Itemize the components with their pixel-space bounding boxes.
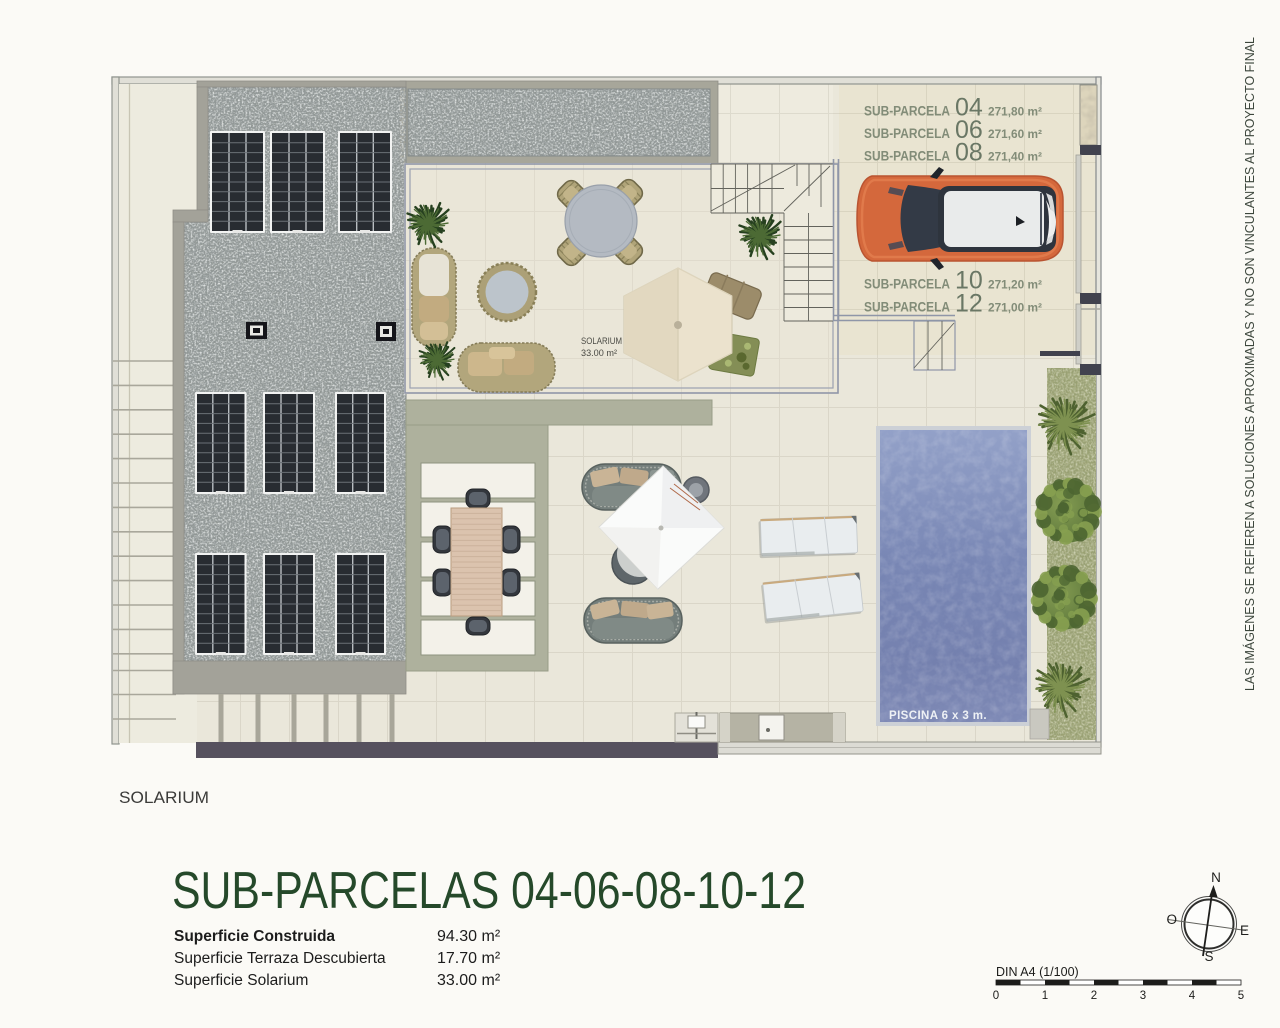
svg-text:33.00 m²: 33.00 m² bbox=[581, 348, 617, 359]
svg-text:271,80 m²: 271,80 m² bbox=[988, 105, 1042, 119]
svg-text:E: E bbox=[1240, 923, 1249, 938]
svg-text:SOLARIUM: SOLARIUM bbox=[581, 336, 622, 347]
svg-text:271,40 m²: 271,40 m² bbox=[988, 150, 1042, 164]
svg-text:S: S bbox=[1204, 949, 1213, 964]
svg-text:SUB-PARCELA: SUB-PARCELA bbox=[864, 277, 950, 292]
svg-text:12: 12 bbox=[955, 290, 983, 318]
svg-text:Superficie Construida: Superficie Construida bbox=[174, 928, 335, 945]
svg-text:94.30 m²: 94.30 m² bbox=[437, 928, 501, 945]
svg-text:N: N bbox=[1211, 870, 1221, 885]
svg-text:SUB-PARCELA: SUB-PARCELA bbox=[864, 126, 950, 141]
svg-text:SUB-PARCELAS 04-06-08-10-12: SUB-PARCELAS 04-06-08-10-12 bbox=[172, 862, 806, 920]
svg-text:08: 08 bbox=[955, 139, 983, 167]
svg-text:SUB-PARCELA: SUB-PARCELA bbox=[864, 149, 950, 164]
svg-text:SUB-PARCELA: SUB-PARCELA bbox=[864, 104, 950, 119]
svg-text:O: O bbox=[1166, 912, 1177, 927]
svg-text:1: 1 bbox=[1042, 990, 1048, 1002]
svg-text:Superficie Solarium: Superficie Solarium bbox=[174, 972, 308, 989]
svg-text:LAS IMÁGENES SE REFIEREN A SOL: LAS IMÁGENES SE REFIEREN A SOLUCIONES AP… bbox=[1242, 37, 1257, 691]
svg-text:271,00 m²: 271,00 m² bbox=[988, 301, 1042, 315]
svg-text:PISCINA 6 x 3 m.: PISCINA 6 x 3 m. bbox=[889, 710, 987, 722]
svg-text:17.70 m²: 17.70 m² bbox=[437, 950, 501, 967]
svg-text:SOLARIUM: SOLARIUM bbox=[119, 788, 209, 807]
svg-text:5: 5 bbox=[1238, 990, 1244, 1002]
svg-text:DIN A4 (1/100): DIN A4 (1/100) bbox=[996, 965, 1079, 979]
svg-text:271,20 m²: 271,20 m² bbox=[988, 278, 1042, 292]
svg-text:SUB-PARCELA: SUB-PARCELA bbox=[864, 300, 950, 315]
svg-text:0: 0 bbox=[993, 990, 999, 1002]
svg-text:2: 2 bbox=[1091, 990, 1097, 1002]
svg-text:33.00 m²: 33.00 m² bbox=[437, 972, 501, 989]
svg-text:271,60 m²: 271,60 m² bbox=[988, 127, 1042, 141]
svg-text:3: 3 bbox=[1140, 990, 1146, 1002]
svg-text:Superficie Terraza Descubierta: Superficie Terraza Descubierta bbox=[174, 950, 386, 967]
svg-text:4: 4 bbox=[1189, 990, 1196, 1002]
